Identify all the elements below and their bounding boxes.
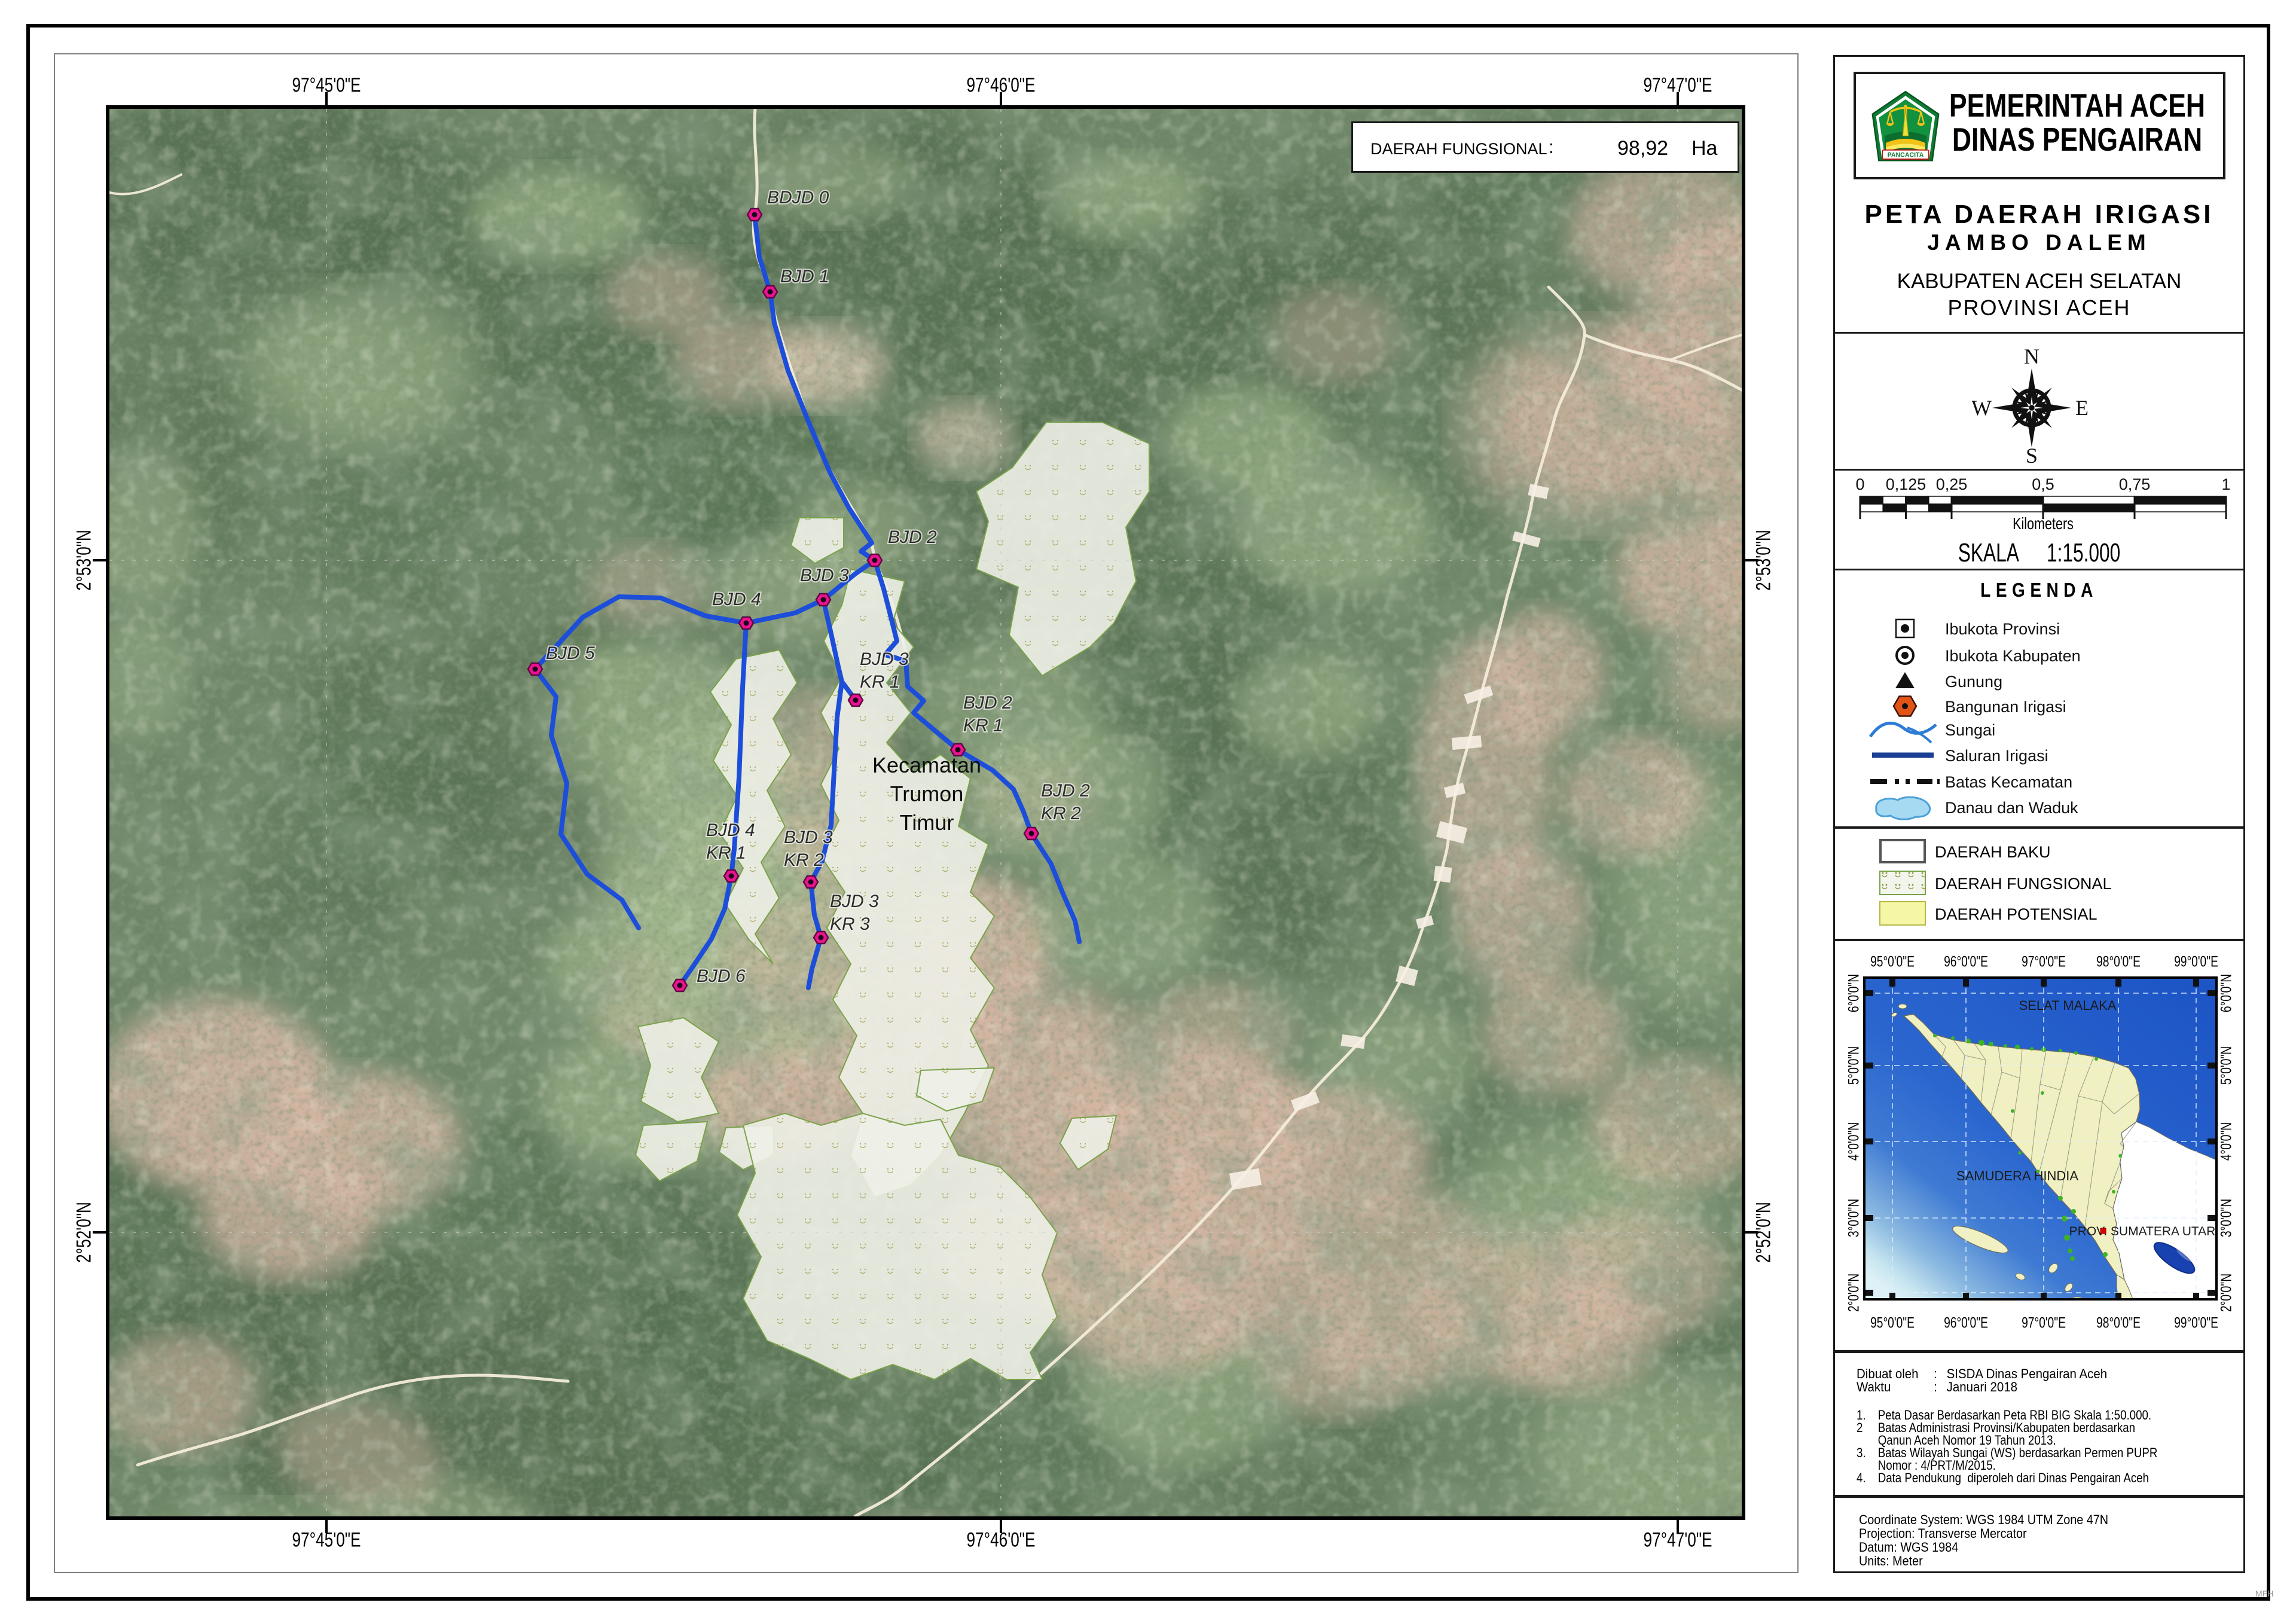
svg-text:0,75: 0,75 [2119,475,2151,493]
svg-text:Danau dan Waduk: Danau dan Waduk [1945,799,2078,817]
svg-text:N: N [2024,346,2039,368]
svg-text:0: 0 [1855,475,1864,493]
svg-text:E: E [2075,396,2089,420]
svg-text:0,5: 0,5 [2032,475,2054,493]
svg-text:Sungai: Sungai [1945,721,1995,739]
svg-text:Batas Kecamatan: Batas Kecamatan [1945,773,2072,791]
svg-text:Bangunan Irigasi: Bangunan Irigasi [1945,698,2066,716]
svg-text:Ibukota Provinsi: Ibukota Provinsi [1945,620,2060,638]
svg-text:Ibukota Kabupaten: Ibukota Kabupaten [1945,647,2081,665]
svg-text:Saluran Irigasi: Saluran Irigasi [1945,747,2048,765]
svg-text:0,25: 0,25 [1936,475,1968,493]
svg-text:Gunung: Gunung [1945,673,2002,691]
svg-text:W: W [1972,396,1992,420]
svg-text:PANCACITA: PANCACITA [1888,152,1924,159]
svg-text:0,125: 0,125 [1886,475,1926,493]
svg-text:1: 1 [2221,475,2230,493]
svg-text:S: S [2026,444,2038,465]
